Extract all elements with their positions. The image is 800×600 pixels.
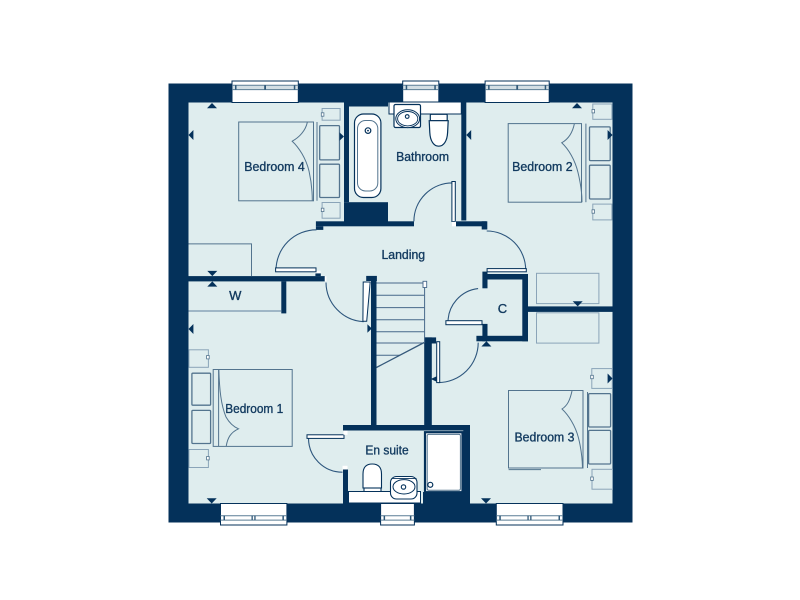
- svg-text:Bathroom: Bathroom: [396, 149, 449, 164]
- svg-text:Bedroom 4: Bedroom 4: [244, 159, 305, 174]
- svg-text:En suite: En suite: [365, 443, 408, 458]
- svg-text:C: C: [498, 301, 507, 316]
- svg-text:Bedroom 3: Bedroom 3: [515, 430, 575, 445]
- svg-text:W: W: [229, 288, 242, 303]
- svg-text:Landing: Landing: [381, 247, 425, 262]
- svg-text:Bedroom 1: Bedroom 1: [225, 401, 283, 416]
- svg-text:Bedroom 2: Bedroom 2: [512, 159, 573, 174]
